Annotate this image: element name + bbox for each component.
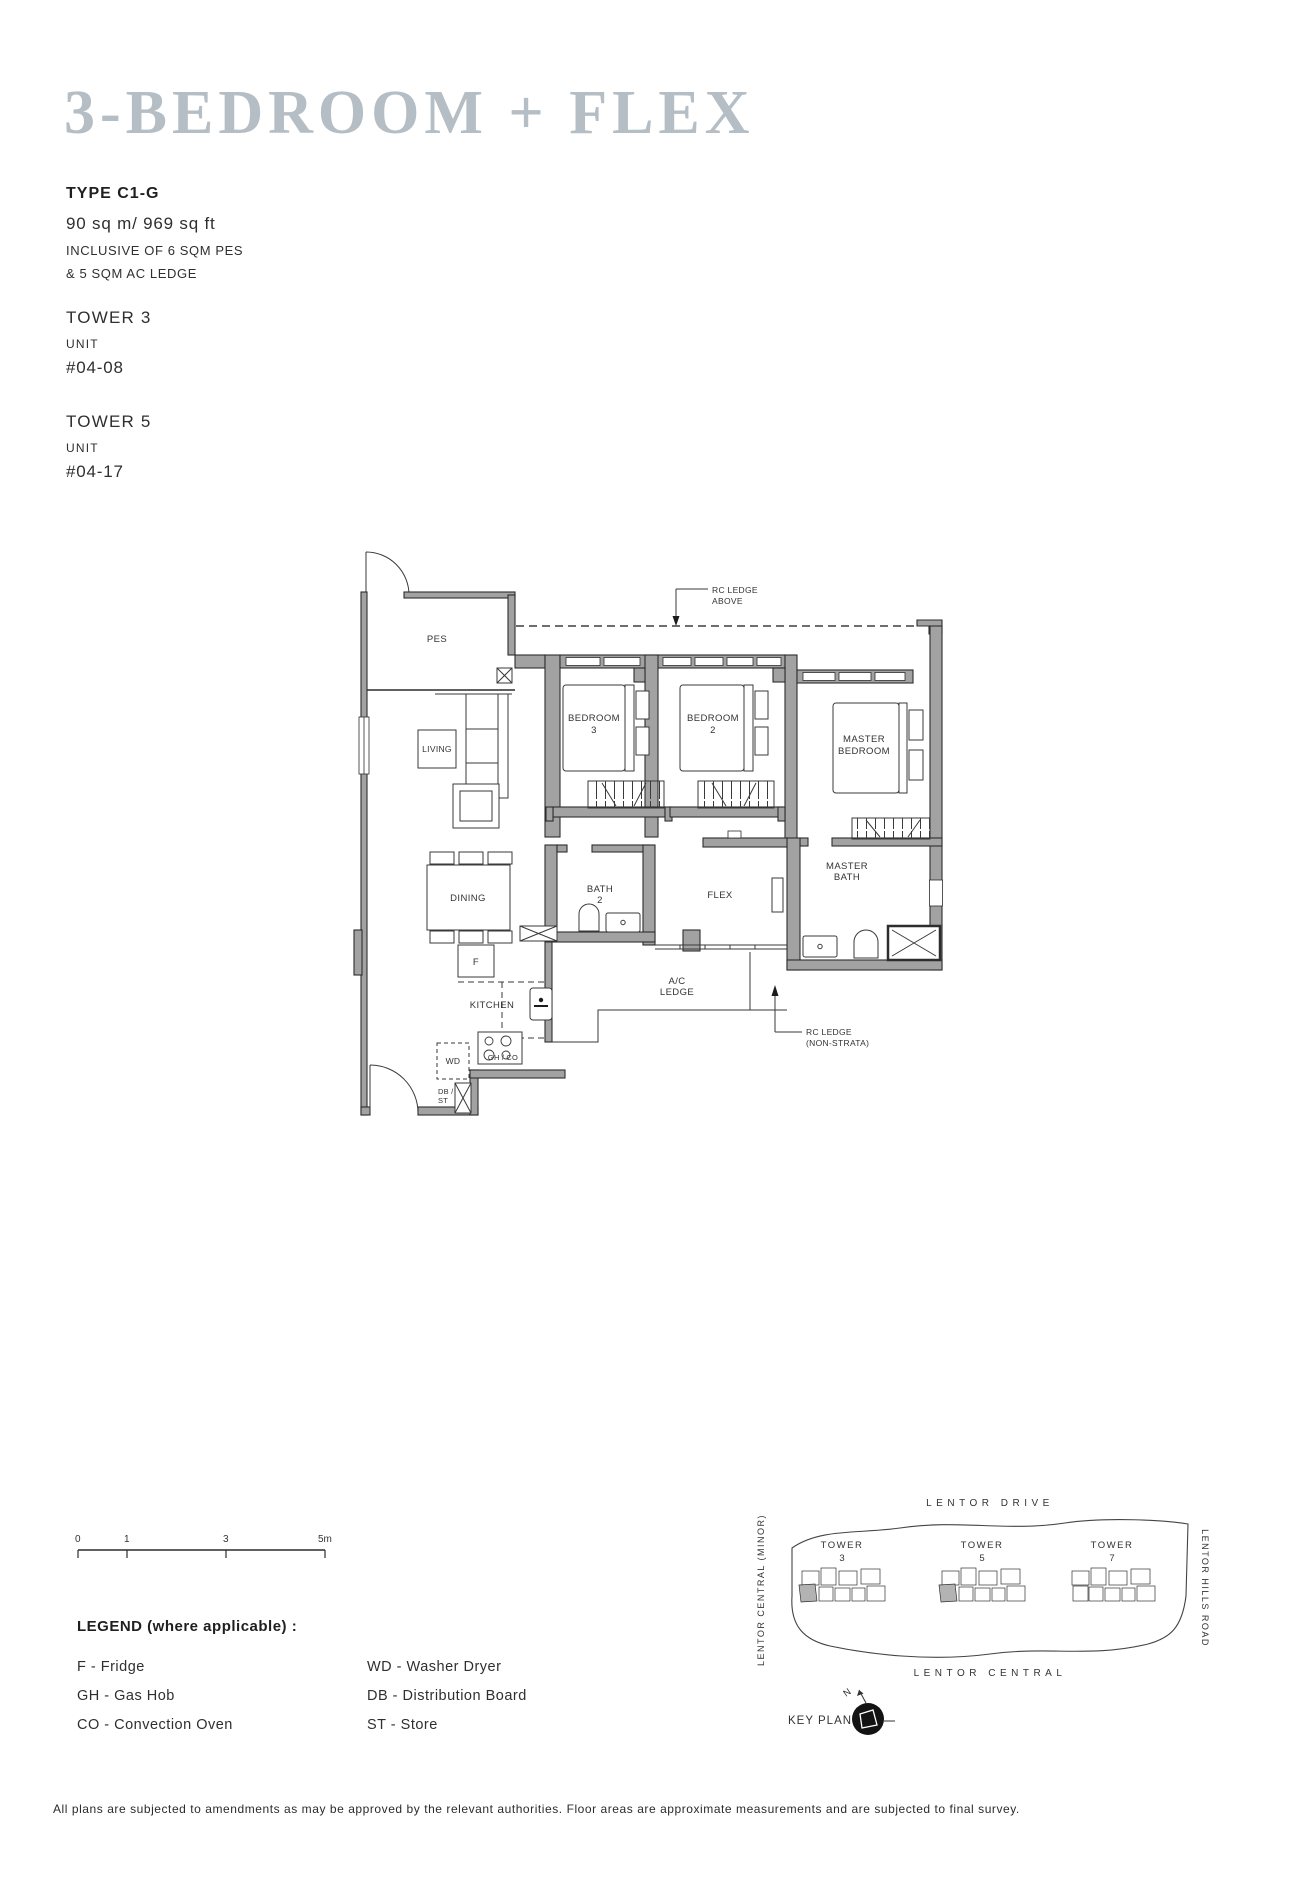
tower-info-1: TOWER 3 UNIT #04-08 bbox=[66, 308, 152, 378]
legend-item-gas-hob: GH - Gas Hob bbox=[77, 1682, 367, 1711]
room-kitchen: F KITCHEN GH / CO WD DB / ST bbox=[437, 945, 552, 1113]
svg-text:3: 3 bbox=[839, 1553, 844, 1564]
keyplan-tower-7: TOWER 7 bbox=[1072, 1540, 1155, 1601]
living-window bbox=[359, 717, 369, 774]
svg-text:DINING: DINING bbox=[450, 893, 486, 904]
legend-item-convection-oven: CO - Convection Oven bbox=[77, 1711, 367, 1740]
svg-text:5m: 5m bbox=[318, 1534, 332, 1545]
tower-name: TOWER 5 bbox=[66, 412, 152, 432]
svg-text:ABOVE: ABOVE bbox=[712, 596, 743, 606]
rc-ledge-non-strata-annotation: RC LEDGE (NON-STRATA) bbox=[772, 985, 870, 1048]
unit-number: #04-17 bbox=[66, 462, 152, 482]
svg-text:FLEX: FLEX bbox=[707, 890, 733, 901]
road-label-top: LENTOR DRIVE bbox=[926, 1498, 1054, 1509]
svg-text:1: 1 bbox=[124, 1534, 130, 1545]
room-bedroom3: BEDROOM 3 bbox=[563, 685, 664, 808]
entry-door bbox=[370, 1065, 418, 1113]
svg-text:BATH: BATH bbox=[587, 884, 613, 895]
svg-text:TOWER: TOWER bbox=[961, 1540, 1004, 1551]
ac-ledge: A/C LEDGE bbox=[552, 952, 787, 1042]
road-label-right: LENTOR HILLS ROAD bbox=[1200, 1529, 1210, 1647]
area-note-pes: INCLUSIVE OF 6 SQM PES bbox=[66, 243, 243, 258]
legend-item-distribution-board: DB - Distribution Board bbox=[367, 1682, 527, 1711]
svg-text:MASTER: MASTER bbox=[843, 734, 885, 745]
footer-disclaimer: All plans are subjected to amendments as… bbox=[53, 1802, 1263, 1816]
room-master-bath: MASTER BATH bbox=[803, 861, 940, 960]
svg-text:RC LEDGE: RC LEDGE bbox=[806, 1027, 852, 1037]
svg-text:BEDROOM: BEDROOM bbox=[838, 746, 890, 757]
svg-text:WD: WD bbox=[446, 1056, 461, 1066]
svg-text:GH / CO: GH / CO bbox=[488, 1053, 518, 1062]
svg-text:LIVING: LIVING bbox=[422, 744, 452, 754]
svg-text:TOWER: TOWER bbox=[1091, 1540, 1134, 1551]
svg-text:0: 0 bbox=[75, 1534, 81, 1545]
keyplan-tower-3: TOWER 3 bbox=[799, 1540, 885, 1602]
svg-text:3: 3 bbox=[223, 1534, 229, 1545]
legend-item-store: ST - Store bbox=[367, 1711, 527, 1740]
room-pes: PES bbox=[367, 634, 515, 694]
room-living: LIVING bbox=[418, 694, 508, 828]
key-plan: LENTOR DRIVE LENTOR CENTRAL LENTOR CENTR… bbox=[750, 1478, 1270, 1793]
room-flex: FLEX bbox=[655, 878, 787, 949]
legend-heading: LEGEND (where applicable) : bbox=[77, 1618, 527, 1635]
svg-text:7: 7 bbox=[1109, 1553, 1114, 1564]
svg-text:2: 2 bbox=[597, 895, 603, 906]
svg-text:ST: ST bbox=[438, 1096, 448, 1105]
unit-label: UNIT bbox=[66, 441, 152, 455]
svg-text:2: 2 bbox=[710, 725, 716, 736]
road-label-bottom: LENTOR CENTRAL bbox=[914, 1668, 1067, 1679]
page-title: 3-BEDROOM + FLEX bbox=[64, 78, 755, 149]
unit-number: #04-08 bbox=[66, 358, 152, 378]
tower-name: TOWER 3 bbox=[66, 308, 152, 328]
svg-text:TOWER: TOWER bbox=[821, 1540, 864, 1551]
svg-text:BATH: BATH bbox=[834, 872, 860, 883]
room-master-bedroom: MASTER BEDROOM bbox=[833, 703, 930, 839]
pes-gate-door bbox=[366, 552, 409, 595]
unit-type-label: TYPE C1-G bbox=[66, 185, 159, 203]
keyplan-tower-5: TOWER 5 bbox=[939, 1540, 1025, 1602]
room-bedroom2: BEDROOM 2 bbox=[680, 685, 774, 808]
legend-item-washer-dryer: WD - Washer Dryer bbox=[367, 1653, 527, 1682]
svg-text:RC LEDGE: RC LEDGE bbox=[712, 585, 758, 595]
svg-text:MASTER: MASTER bbox=[826, 861, 868, 872]
unit-label: UNIT bbox=[66, 337, 152, 351]
tower-info-2: TOWER 5 UNIT #04-17 bbox=[66, 412, 152, 482]
unit-area: 90 sq m/ 969 sq ft bbox=[66, 214, 216, 234]
legend: LEGEND (where applicable) : F - Fridge G… bbox=[77, 1618, 527, 1740]
north-compass-icon: N bbox=[841, 1686, 895, 1735]
svg-text:BEDROOM: BEDROOM bbox=[568, 713, 620, 724]
brochure-page: 3-BEDROOM + FLEX TYPE C1-G 90 sq m/ 969 … bbox=[0, 0, 1300, 1889]
key-plan-label: KEY PLAN bbox=[788, 1715, 852, 1727]
svg-text:(NON-STRATA): (NON-STRATA) bbox=[806, 1038, 869, 1048]
scale-bar: 0 1 3 5m bbox=[70, 1528, 350, 1570]
legend-item-fridge: F - Fridge bbox=[77, 1653, 367, 1682]
area-note-ac-ledge: & 5 SQM AC LEDGE bbox=[66, 266, 197, 281]
svg-text:A/C: A/C bbox=[668, 976, 685, 987]
floor-plan: RC LEDGE ABOVE bbox=[340, 440, 960, 1140]
road-label-left: LENTOR CENTRAL (MINOR) bbox=[756, 1514, 766, 1666]
svg-text:LEDGE: LEDGE bbox=[660, 987, 694, 998]
svg-text:BEDROOM: BEDROOM bbox=[687, 713, 739, 724]
svg-text:PES: PES bbox=[427, 634, 447, 645]
room-bath2: BATH 2 bbox=[579, 884, 640, 932]
room-dining: DINING bbox=[427, 852, 557, 943]
svg-text:3: 3 bbox=[591, 725, 597, 736]
svg-text:5: 5 bbox=[979, 1553, 984, 1564]
svg-text:KITCHEN: KITCHEN bbox=[470, 1000, 515, 1011]
svg-text:N: N bbox=[841, 1686, 853, 1699]
rc-ledge-above-annotation: RC LEDGE ABOVE bbox=[516, 585, 917, 626]
svg-text:DB /: DB / bbox=[438, 1087, 454, 1096]
svg-text:F: F bbox=[473, 957, 479, 968]
